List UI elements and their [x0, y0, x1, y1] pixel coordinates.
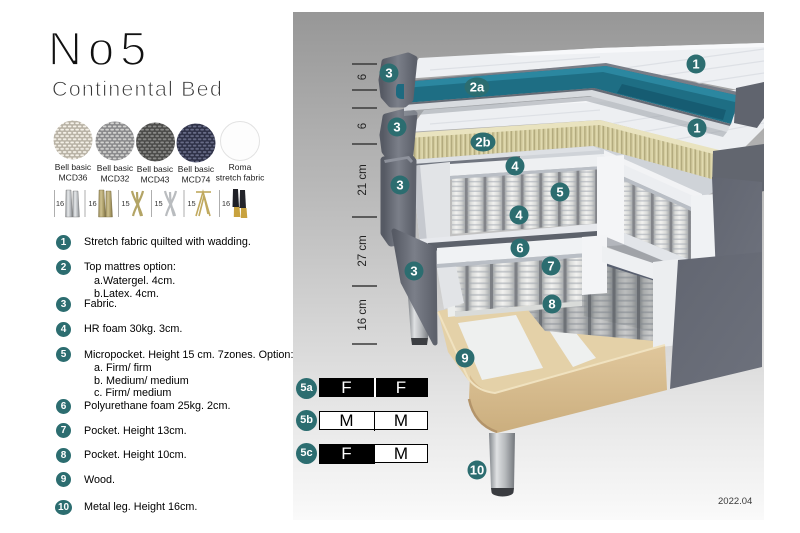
svg-text:3: 3 [396, 178, 403, 193]
svg-text:7: 7 [547, 259, 554, 274]
svg-text:MCD74: MCD74 [182, 175, 211, 185]
svg-text:Bell basic: Bell basic [178, 164, 215, 174]
svg-text:27 cm: 27 cm [357, 235, 369, 266]
svg-text:16: 16 [88, 199, 96, 208]
svg-text:4: 4 [511, 159, 519, 174]
svg-text:MCD32: MCD32 [101, 174, 130, 184]
svg-text:6: 6 [516, 241, 523, 256]
svg-text:15: 15 [187, 199, 195, 208]
svg-text:2a: 2a [470, 80, 485, 95]
svg-text:Bell basic: Bell basic [55, 162, 92, 172]
svg-text:MCD43: MCD43 [141, 175, 170, 185]
svg-text:6: 6 [357, 74, 369, 80]
svg-text:2b: 2b [475, 135, 490, 150]
svg-text:16 cm: 16 cm [357, 299, 369, 330]
svg-text:15: 15 [154, 199, 162, 208]
svg-text:1: 1 [693, 121, 700, 136]
svg-text:3: 3 [410, 264, 417, 279]
svg-text:8: 8 [548, 297, 555, 312]
svg-text:5: 5 [556, 185, 563, 200]
svg-text:MCD36: MCD36 [59, 173, 88, 183]
svg-text:Bell basic: Bell basic [97, 163, 134, 173]
svg-text:stretch fabric: stretch fabric [216, 173, 265, 183]
svg-text:6: 6 [357, 123, 369, 129]
svg-text:10: 10 [470, 463, 484, 478]
svg-text:15: 15 [121, 199, 129, 208]
svg-text:Bell basic: Bell basic [137, 164, 174, 174]
svg-text:16: 16 [56, 199, 64, 208]
svg-text:4: 4 [515, 208, 523, 223]
svg-text:Roma: Roma [229, 162, 252, 172]
svg-text:3: 3 [393, 120, 400, 135]
svg-text:9: 9 [461, 351, 468, 366]
svg-text:3: 3 [385, 66, 392, 81]
svg-text:16: 16 [222, 199, 230, 208]
svg-text:1: 1 [692, 57, 699, 72]
svg-text:21 cm: 21 cm [357, 164, 369, 195]
